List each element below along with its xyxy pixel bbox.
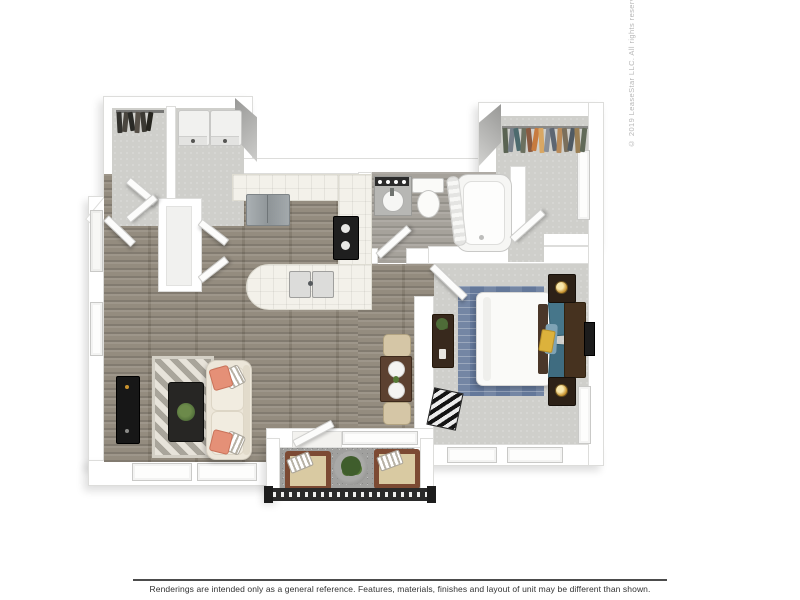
- refrigerator: [246, 194, 290, 226]
- disclaimer-text: Renderings are intended only as a genera…: [0, 584, 800, 594]
- entry-closet-interior: [166, 206, 192, 286]
- railing-balusters: [273, 492, 427, 497]
- stove: [333, 216, 359, 260]
- window-bedroom-east: [578, 386, 591, 444]
- window-bedroom-south-1: [447, 447, 497, 463]
- window-living-west: [90, 302, 103, 356]
- coffee-table: [168, 382, 204, 442]
- entry-door-sill: [90, 210, 103, 272]
- hanging-garment: [146, 112, 154, 132]
- footer-divider: [133, 579, 667, 581]
- toilet-bowl: [417, 190, 440, 218]
- railing-post-left: [264, 486, 273, 503]
- tv-console-decor-1: [125, 385, 129, 389]
- washer-knob: [191, 139, 195, 143]
- entry-closet-clothes-rack: [117, 112, 163, 136]
- window-living-south-2: [197, 463, 257, 481]
- sofa: [206, 360, 252, 460]
- dresser-plant: [436, 318, 448, 330]
- headboard: [564, 302, 586, 378]
- bathtub-drain: [479, 235, 484, 240]
- coffee-table-plant: [177, 403, 195, 421]
- vanity-mirror-lights: [375, 177, 409, 186]
- stove-burner-2: [341, 241, 350, 250]
- dryer: [210, 110, 242, 146]
- railing-post-right: [427, 486, 436, 503]
- hanging-garment: [580, 128, 587, 152]
- patio-planter: [334, 451, 368, 485]
- kitchen-sink: [288, 269, 334, 299]
- tv-console: [116, 376, 140, 444]
- washer: [178, 110, 210, 146]
- bed-duvet-fold: [483, 297, 491, 381]
- table-lamp-south: [555, 384, 568, 397]
- patio-plant: [341, 456, 361, 476]
- sink-basin-right: [312, 271, 334, 298]
- bathtub-basin: [463, 181, 505, 245]
- stove-burner-1: [341, 224, 350, 233]
- floorplan-rendering: © 2019 LeaseStar LLC. All rights reserve…: [0, 0, 800, 600]
- copyright-watermark: © 2019 LeaseStar LLC. All rights reserve…: [627, 8, 636, 148]
- dryer-knob: [223, 139, 227, 143]
- wall-art: [584, 322, 595, 356]
- dining-table: [380, 356, 412, 402]
- bathroom-vanity: [374, 176, 412, 216]
- vanity-light-2: [386, 180, 390, 184]
- sink-faucet: [308, 281, 313, 286]
- table-lamp-north: [555, 281, 568, 294]
- balcony-railing: [268, 488, 432, 501]
- vanity-light-3: [394, 180, 398, 184]
- dinner-plate-2: [388, 382, 405, 399]
- window-bedroom-south-2: [507, 447, 563, 463]
- dining-chair-south: [383, 402, 411, 425]
- window-dining-balcony: [342, 431, 418, 445]
- dining-chair-north: [383, 334, 411, 357]
- tv-console-decor-2: [125, 429, 129, 433]
- dining-centerpiece: [393, 376, 399, 383]
- window-closet-east: [577, 150, 590, 220]
- window-living-south-1: [132, 463, 192, 481]
- refrigerator-door-split: [267, 195, 268, 223]
- dresser: [432, 314, 454, 368]
- vanity-faucet: [390, 188, 394, 196]
- dresser-decor: [439, 349, 446, 359]
- vanity-light-4: [402, 180, 406, 184]
- vanity-light-1: [378, 180, 382, 184]
- walkin-closet-clothes-rack: [503, 128, 587, 156]
